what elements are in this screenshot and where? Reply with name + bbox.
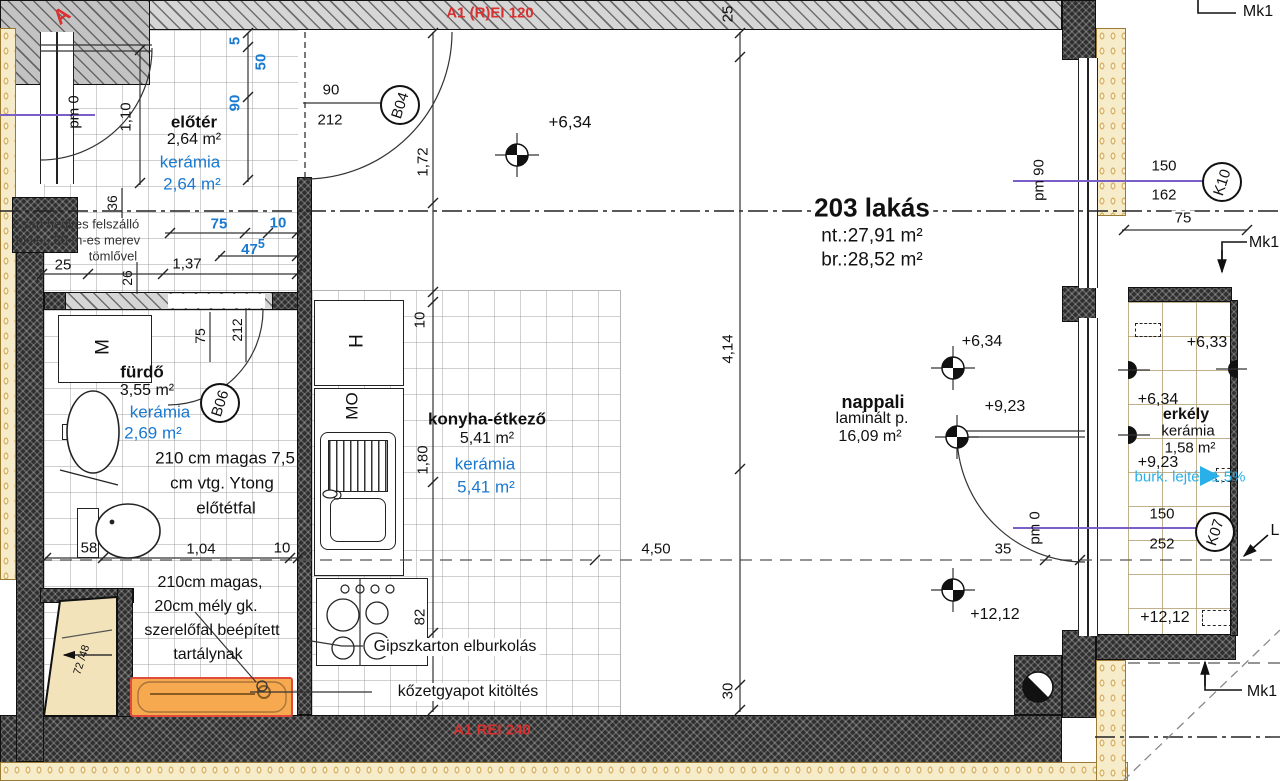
note-kozetgyapot: kőzetgyapot kitöltés [395,683,542,701]
dim-75-blue: 75 [211,217,228,234]
toilet-bowl [96,504,160,558]
dishwasher-label: MO [342,392,361,419]
dim-4-50: 4,50 [638,542,673,559]
dim-1-37: 1,37 [172,257,201,274]
survey-point-icon [495,133,539,177]
room-area-konyha: 5,41 m² [460,430,514,448]
ref-label-mk1-top: Mk1 [1243,3,1273,21]
window-tag-k07: K07 [1195,512,1235,552]
room-finish-eloter: kerámia [160,152,220,171]
apartment-title: 203 lakás [811,193,933,222]
slope-note-erkely: burk. lejtés 1,5% [1135,470,1246,487]
parapet-mark-right: pm 90 [1032,159,1049,201]
ref-label-l: L [1271,522,1280,540]
dim-10-konyha: 10 [413,312,430,329]
corner-column-icon [1022,672,1053,703]
note-szerelofal-1: 210cm magas, [158,574,263,592]
dim-1-72: 1,72 [416,147,433,176]
dim-82: 82 [413,609,430,626]
door-tag-b06: B06 [200,383,240,423]
bathtub-detail [138,682,286,712]
room-area-eloter: 2,64 m² [167,131,221,149]
dim-b04-width: 90 [323,83,340,100]
parapet-mark-nappali: pm 0 [1028,511,1045,544]
dim-5: 5 [228,37,245,45]
apartment-net-area: nt.:27,91 m² [821,225,922,246]
elevation-nappali-634: +6,34 [962,333,1002,351]
parapet-mark-eloter: pm 0 [67,95,84,128]
elevation-erkely-633: +6,33 [1187,334,1227,352]
note-gipszkarton: Gipszkarton elburkolás [371,638,540,656]
room-floor-nappali: laminált p. [836,410,909,428]
dim-10-blue: 10 [270,216,287,233]
room-name-erkely: erkély [1163,406,1209,424]
note-ytong-3: előtétfal [196,498,256,517]
room-finish-area-konyha: 5,41 m² [457,477,515,496]
dim-b06-height: 212 [230,318,246,341]
floor-plan-canvas: A1 (R)EI 120 A1 REI 240 A 203 lakás nt.:… [0,0,1280,781]
fire-rating-bottom: A1 REI 240 [453,723,531,740]
survey-point-icon [935,415,979,459]
room-finish-furdo: kerámia [130,402,190,421]
elevation-nappali-923: +9,23 [985,398,1025,416]
apartment-gross-area: br.:28,52 m² [821,249,922,270]
room-finish-area-eloter: 2,64 m² [163,174,221,193]
room-finish-erkely: kerámia [1161,424,1214,441]
dim-4-14: 4,14 [721,334,738,363]
ref-label-mk1-bottom: Mk1 [1247,683,1277,701]
dim-b04-height: 212 [317,113,342,130]
room-name-eloter: előtér [171,112,217,131]
door-swing-balcony [957,431,1085,562]
washbasin [60,391,119,485]
elevation-erkely-1212: +12,12 [1140,609,1189,627]
dim-26: 26 [120,270,136,286]
washing-machine-label: M [92,339,113,355]
dim-b06-width: 75 [193,328,209,344]
dim-k07-sill: 252 [1149,537,1174,554]
room-name-nappali: nappali [841,392,904,412]
note-szerelofal-4: tartálynak [173,646,242,664]
survey-point-icon [931,346,975,390]
room-area-nappali: 16,09 m² [838,428,901,446]
dim-1-80: 1,80 [416,445,433,474]
dim-1-10: 1,10 [119,102,136,131]
note-ytong-1: 210 cm magas 7,5 [155,448,295,467]
door-tag-b04: B04 [380,85,420,125]
room-name-furdo: fürdő [120,362,163,381]
dim-90-vert: 90 [228,95,245,112]
fridge-label: H [346,334,367,348]
dim-1-04: 1,04 [186,542,215,559]
elevation-top-634: +6,34 [548,112,591,131]
note-hose-2: ékkel, 30 m-es merev [16,234,140,249]
note-szerelofal-2: 20cm mély gk. [154,598,257,616]
ref-label-mk1-mid: Mk1 [1249,234,1279,252]
dim-35: 35 [992,542,1015,559]
dim-36: 36 [105,195,121,211]
dim-58: 58 [81,541,98,558]
survey-point-icon [931,568,975,612]
note-szerelofal-3: szerelőfal beépített [144,622,279,640]
note-hose-1: Csap nedves felszálló [13,218,139,233]
room-name-konyha: konyha-étkező [428,409,546,428]
elevation-nappali-1212: +12,12 [970,606,1019,624]
room-area-furdo: 3,55 m² [120,382,174,400]
note-hose-3: tömlővel [89,250,137,265]
window-tag-k10: K10 [1202,162,1242,202]
room-finish-area-furdo: 2,69 m² [124,423,182,442]
fire-rating-top: A1 (R)EI 120 [446,6,534,23]
dim-k07-width: 150 [1149,507,1174,524]
dim-k10-width: 150 [1151,159,1176,176]
dim-50: 50 [254,54,271,71]
sink-tap [323,490,341,499]
dim-10-furdo: 10 [274,541,291,558]
note-ytong-2: cm vtg. Ytong [170,473,274,492]
dim-47-5: 475 [241,237,265,259]
dim-75-k10: 75 [1172,211,1195,228]
dim-30: 30 [721,683,738,700]
room-finish-konyha: kerámia [455,454,515,473]
dim-25-top: 25 [721,6,738,23]
dim-25-left: 25 [55,258,72,275]
dim-k10-sill: 162 [1151,188,1176,205]
